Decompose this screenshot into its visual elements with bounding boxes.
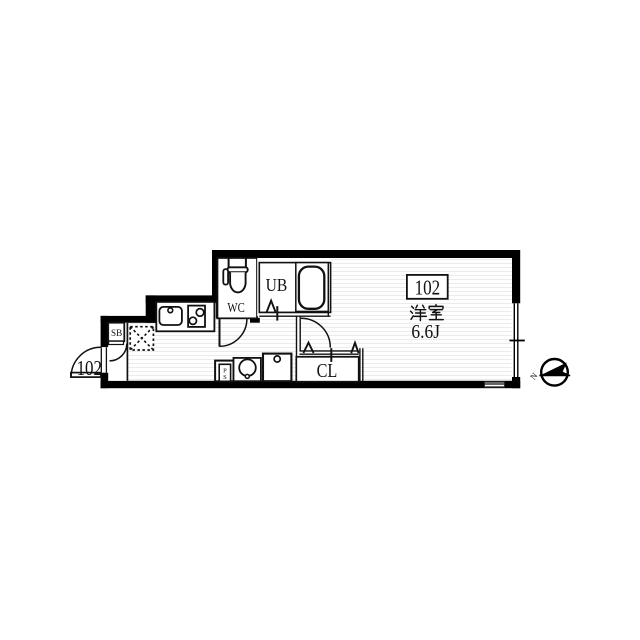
svg-text:CL: CL bbox=[317, 361, 338, 382]
svg-text:WC: WC bbox=[227, 301, 244, 316]
svg-text:6.6J: 6.6J bbox=[411, 321, 440, 343]
svg-text:102: 102 bbox=[77, 356, 102, 380]
svg-text:102: 102 bbox=[415, 275, 441, 299]
svg-text:S: S bbox=[223, 374, 227, 381]
svg-text:UB: UB bbox=[266, 275, 288, 295]
svg-text:SB: SB bbox=[111, 329, 122, 339]
